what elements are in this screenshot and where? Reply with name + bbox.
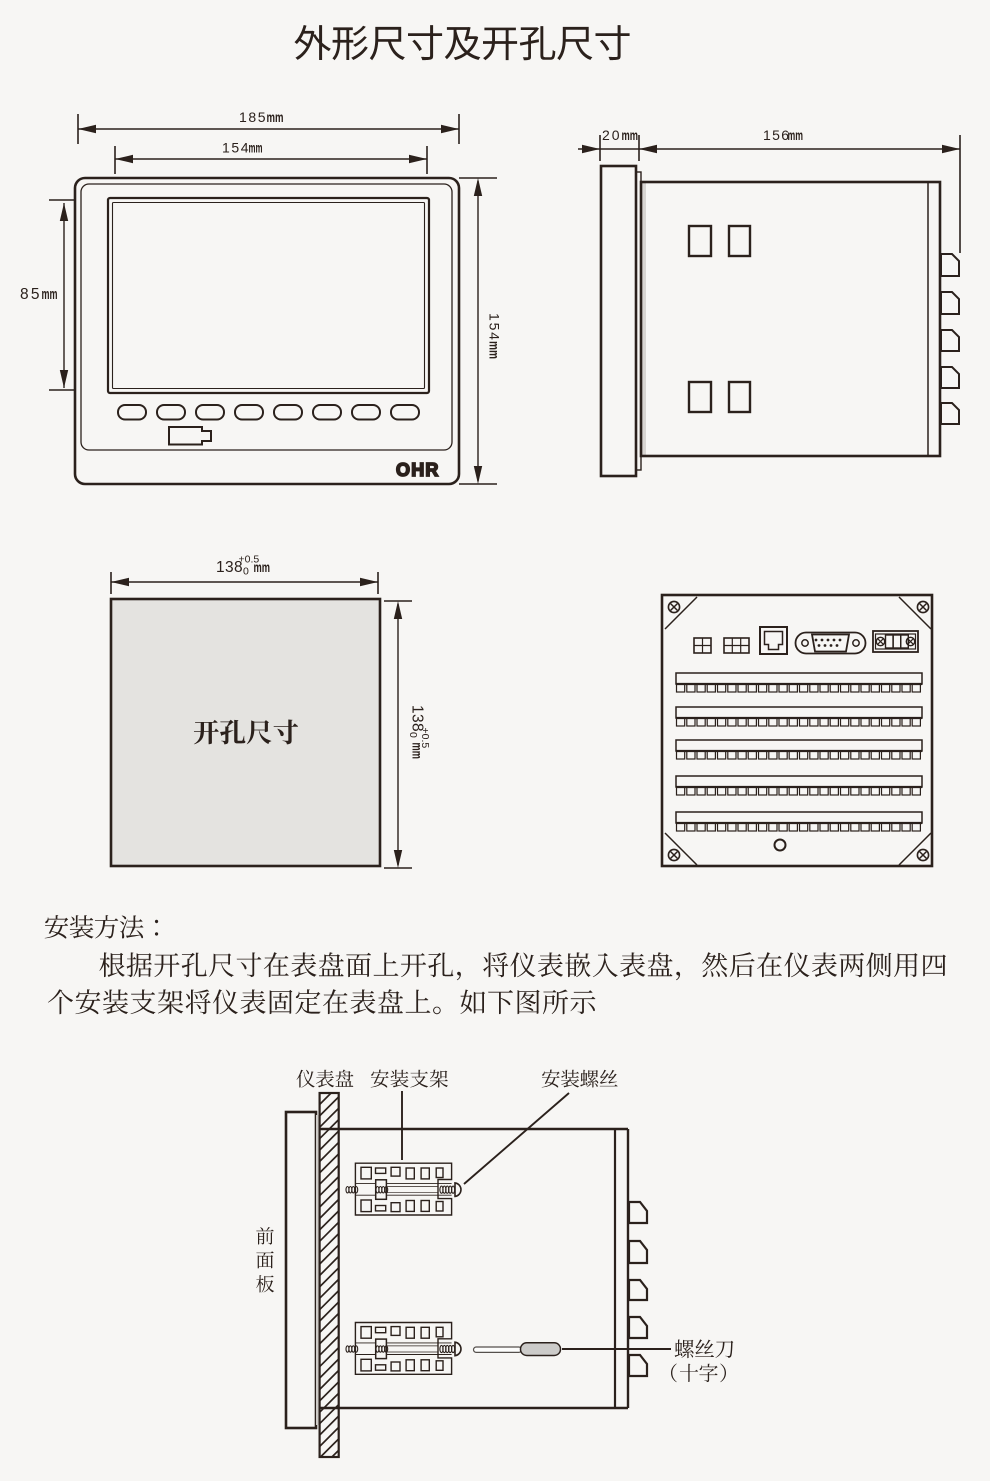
svg-text:mm: mm	[410, 743, 426, 760]
svg-text:0: 0	[407, 732, 419, 738]
svg-text:mm: mm	[788, 127, 804, 143]
svg-text:mm: mm	[254, 559, 271, 575]
svg-text:mm: mm	[267, 109, 284, 125]
svg-text:85: 85	[20, 286, 42, 303]
svg-text:mm: mm	[42, 286, 58, 303]
svg-text:185: 185	[239, 109, 267, 125]
svg-text:154: 154	[222, 140, 250, 156]
svg-text:0: 0	[243, 566, 249, 578]
svg-text:154: 154	[487, 313, 503, 342]
svg-text:mm: mm	[249, 140, 263, 156]
svg-text:mm: mm	[622, 127, 639, 143]
svg-text:mm: mm	[487, 341, 503, 359]
svg-text:156: 156	[763, 127, 790, 143]
svg-text:20: 20	[602, 127, 622, 143]
svg-text:OHR: OHR	[396, 460, 440, 480]
